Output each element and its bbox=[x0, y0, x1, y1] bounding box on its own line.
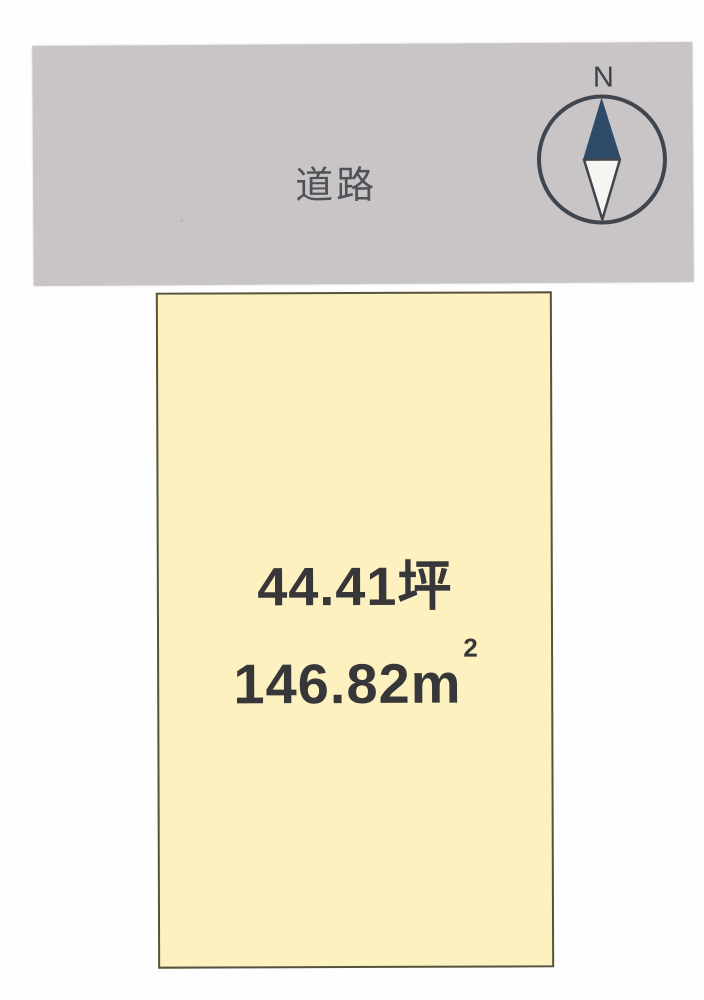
road-band: 道路 N bbox=[32, 42, 693, 286]
compass-rose-icon bbox=[527, 92, 678, 233]
land-parcel: 44.41坪 146.82m2 bbox=[156, 291, 554, 968]
compass: N bbox=[526, 62, 677, 235]
area-m2-label: 146.82m2 bbox=[159, 650, 551, 716]
area-tsubo-label: 44.41坪 bbox=[159, 541, 551, 621]
scan-speck bbox=[180, 219, 183, 222]
compass-north-label: N bbox=[530, 62, 676, 93]
road-label: 道路 bbox=[295, 154, 377, 209]
area-m2-value: 146.82 bbox=[233, 652, 411, 716]
area-m2-exponent: 2 bbox=[463, 633, 479, 663]
area-m2-unit: m bbox=[411, 652, 462, 715]
compass-needle-south bbox=[584, 159, 620, 219]
parcel-area-labels: 44.41坪 146.82m2 bbox=[159, 541, 552, 716]
land-plot-diagram: 道路 N 44.41坪 146.82m2 bbox=[0, 0, 704, 1000]
compass-needle-north bbox=[583, 97, 621, 159]
